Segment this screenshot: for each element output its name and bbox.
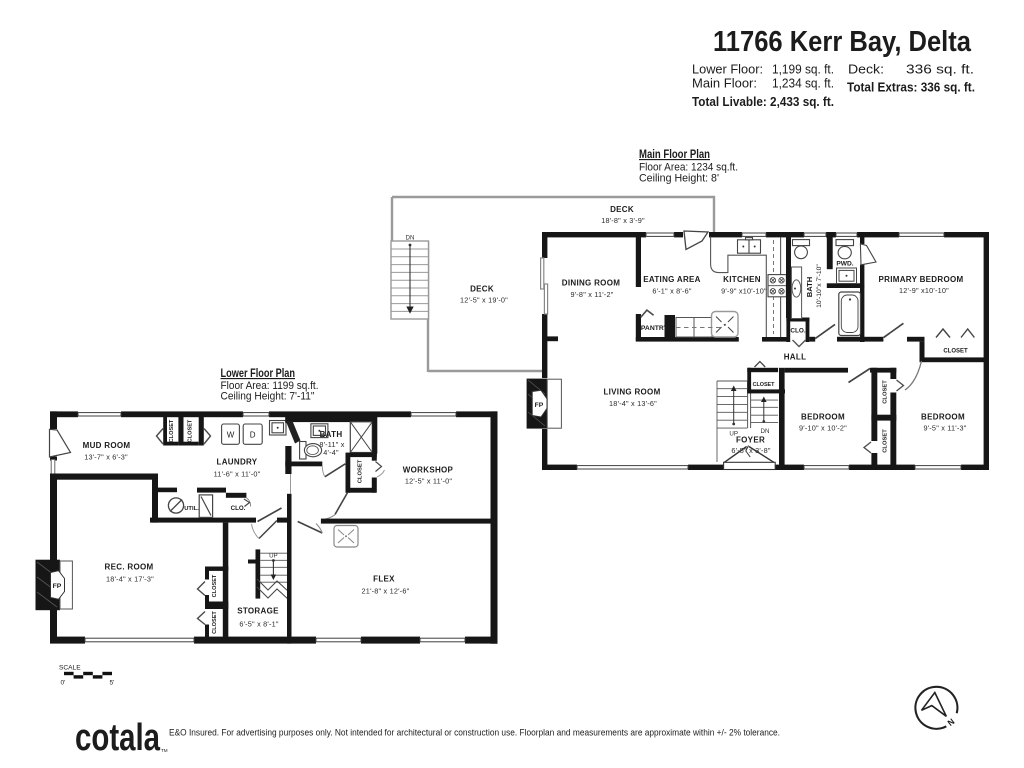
svg-text:CLOSET: CLOSET [883,429,889,453]
svg-text:0': 0' [61,680,66,687]
svg-text:18'-8" x 3'-9": 18'-8" x 3'-9" [601,216,645,225]
svg-text:DN: DN [406,235,415,242]
svg-text:18'-4" x 17'-3": 18'-4" x 17'-3" [106,575,154,584]
svg-text:PRIMARY BEDROOM: PRIMARY BEDROOM [879,275,964,284]
svg-text:CLOSET: CLOSET [212,574,218,597]
svg-text:PANTRY: PANTRY [641,325,669,332]
svg-text:CLOSET: CLOSET [188,419,194,442]
svg-text:LIVING ROOM: LIVING ROOM [603,388,660,397]
svg-text:12'-9" x10'-10": 12'-9" x10'-10" [899,286,949,295]
svg-text:10'-10"x 7'-10": 10'-10"x 7'-10" [816,264,823,308]
svg-text:12'-5" x 19'-0": 12'-5" x 19'-0" [460,296,508,305]
svg-text:CLOSET: CLOSET [943,349,968,355]
svg-text:Main Floor Plan: Main Floor Plan [639,149,710,161]
svg-text:PWD.: PWD. [836,260,853,267]
svg-text:Total Livable: 2,433 sq. ft.: Total Livable: 2,433 sq. ft. [692,94,834,109]
svg-text:6'-5" x 8'-1": 6'-5" x 8'-1" [239,620,279,629]
svg-text:1,234 sq. ft.: 1,234 sq. ft. [772,76,834,91]
svg-text:BATH: BATH [805,277,814,298]
svg-text:D: D [250,431,256,440]
svg-text:MUD ROOM: MUD ROOM [83,441,131,450]
svg-text:CLO.: CLO. [231,505,246,512]
svg-text:BEDROOM: BEDROOM [801,413,845,422]
svg-text:9'-8" x 11'-2": 9'-8" x 11'-2" [570,290,613,299]
svg-text:336 sq. ft.: 336 sq. ft. [906,62,974,77]
svg-text:9'-10" x 10'-2": 9'-10" x 10'-2" [799,424,847,433]
svg-text:DINING ROOM: DINING ROOM [562,279,620,288]
svg-text:cotala: cotala [75,717,161,759]
svg-text:CLOSET: CLOSET [358,459,364,483]
svg-text:5': 5' [110,680,115,687]
svg-text:FP: FP [535,402,544,409]
svg-text:Main Floor:: Main Floor: [692,76,757,91]
svg-text:STORAGE: STORAGE [237,607,279,616]
svg-text:SCALE: SCALE [59,665,81,672]
svg-text:11'-6" x 11'-0": 11'-6" x 11'-0" [214,470,261,479]
svg-text:FOYER: FOYER [736,436,765,445]
svg-text:18'-4" x 13'-6": 18'-4" x 13'-6" [609,399,657,408]
svg-text:4'-4": 4'-4" [323,448,339,457]
svg-text:Ceiling Height: 7'-11": Ceiling Height: 7'-11" [221,391,315,403]
svg-text:KITCHEN: KITCHEN [723,275,761,284]
svg-text:6'-1" x 8'-6": 6'-1" x 8'-6" [652,287,692,296]
svg-text:CLOSET: CLOSET [883,380,889,404]
svg-text:11766 Kerr Bay, Delta: 11766 Kerr Bay, Delta [713,26,972,58]
svg-text:E&O Insured. For advertising p: E&O Insured. For advertising purposes on… [169,728,780,738]
svg-text:LAUNDRY: LAUNDRY [217,458,258,467]
svg-text:Total Extras: 336 sq. ft.: Total Extras: 336 sq. ft. [847,80,975,95]
svg-text:9'-9" x10'-10": 9'-9" x10'-10" [721,287,767,296]
svg-text:DECK: DECK [610,205,634,214]
svg-text:FP: FP [53,583,62,590]
svg-text:BEDROOM: BEDROOM [921,413,965,422]
svg-text:FLEX: FLEX [373,575,395,584]
svg-text:BATH: BATH [320,430,343,439]
svg-text:UTIL.: UTIL. [184,506,199,512]
svg-text:9'-5" x 11'-3": 9'-5" x 11'-3" [923,424,966,433]
svg-text:Deck:: Deck: [848,62,884,77]
svg-text:W: W [227,431,235,440]
svg-text:1,199 sq. ft.: 1,199 sq. ft. [772,62,834,77]
svg-text:Lower Floor Plan: Lower Floor Plan [221,368,296,380]
svg-text:EATING AREA: EATING AREA [643,275,701,284]
svg-text:UP: UP [269,553,278,560]
svg-text:CLO.: CLO. [790,328,805,335]
svg-text:REC. ROOM: REC. ROOM [105,563,154,572]
svg-text:CLOSET: CLOSET [169,419,175,442]
svg-text:DECK: DECK [470,285,494,294]
svg-text:TM: TM [161,748,168,753]
svg-text:CLOSET: CLOSET [212,611,218,634]
svg-text:DN: DN [761,428,770,435]
svg-text:13'-7" x 6'-3": 13'-7" x 6'-3" [84,453,128,462]
svg-text:HALL: HALL [784,353,807,362]
svg-text:21'-8" x 12'-6": 21'-8" x 12'-6" [362,587,410,596]
svg-text:Lower Floor:: Lower Floor: [692,62,763,77]
svg-text:Ceiling Height: 8': Ceiling Height: 8' [639,173,719,185]
svg-text:WORKSHOP: WORKSHOP [403,466,454,475]
svg-text:CLOSET: CLOSET [753,382,776,388]
svg-text:12'-5" x 11'-0": 12'-5" x 11'-0" [405,477,453,486]
